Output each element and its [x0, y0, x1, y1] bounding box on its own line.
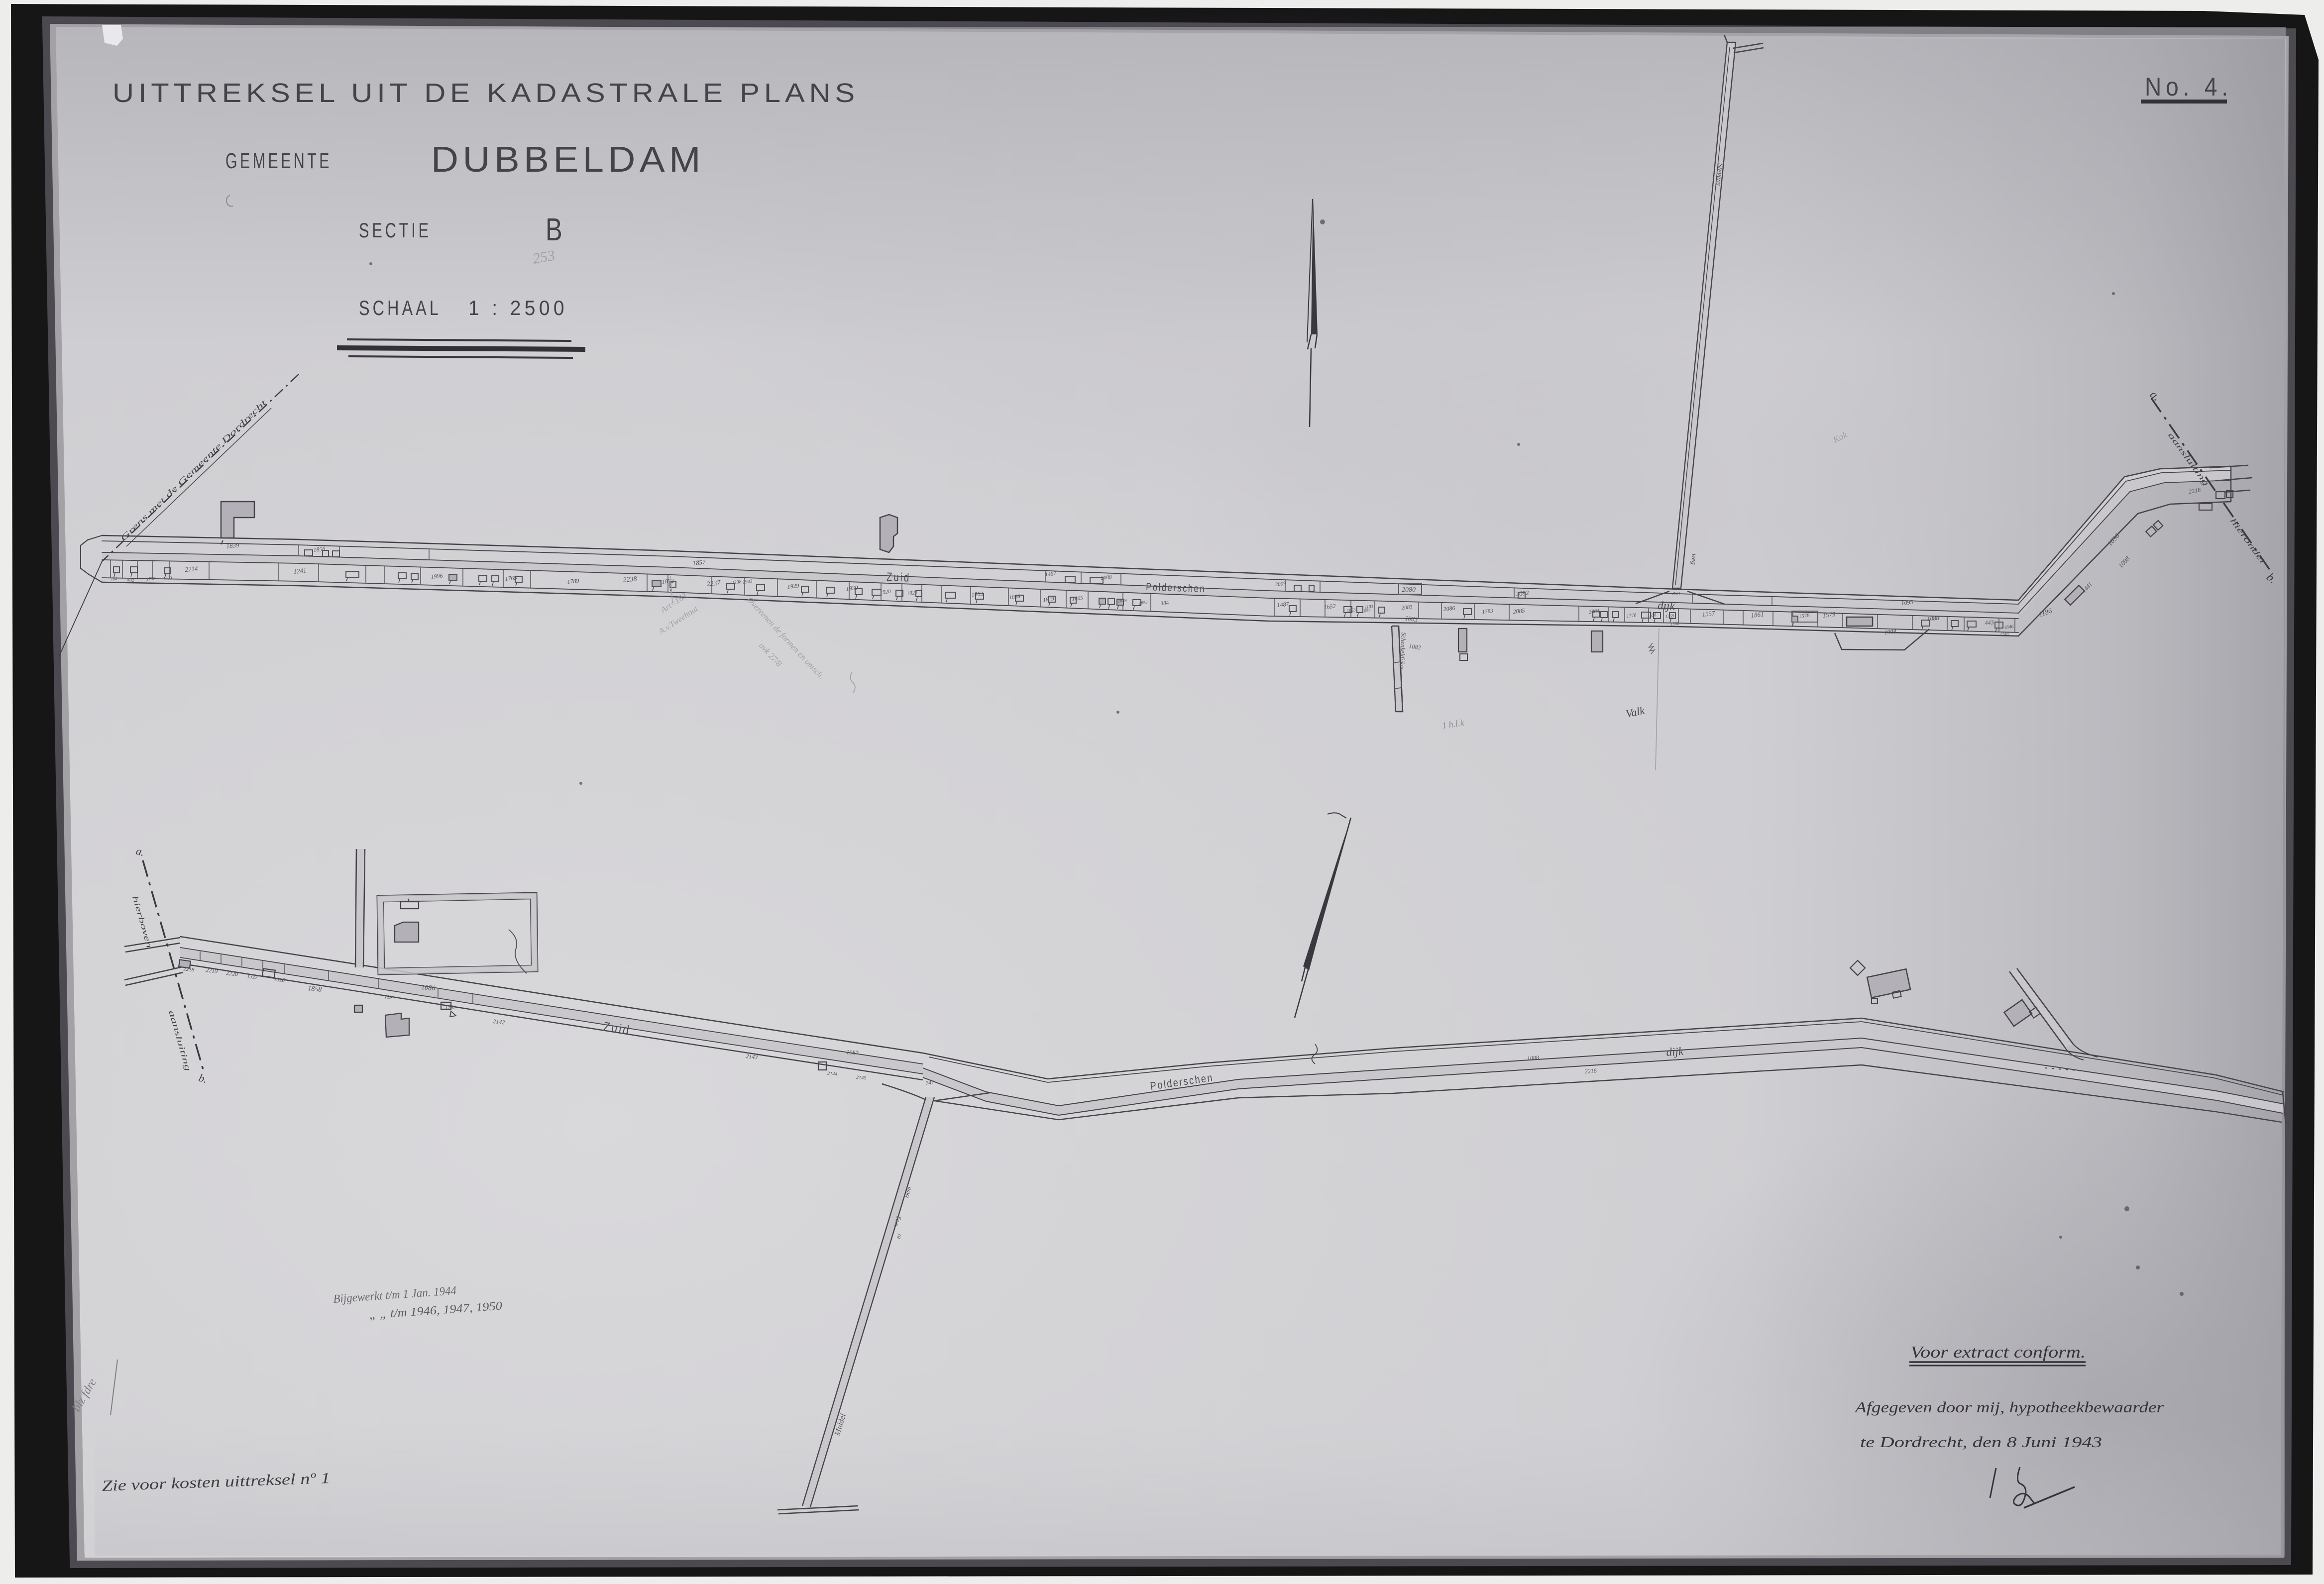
svg-text:Voor extract conform.: Voor extract conform. — [1910, 1343, 2086, 1362]
svg-text:1849: 1849 — [1117, 598, 1127, 604]
svg-text:SECTIE: SECTIE — [359, 218, 432, 242]
svg-text:747: 747 — [925, 1080, 934, 1086]
svg-text:No. 4.: No. 4. — [2145, 73, 2232, 102]
svg-text:2008: 2008 — [1101, 574, 1112, 581]
svg-text:1846: 1846 — [2003, 624, 2014, 631]
svg-text:1087: 1087 — [846, 1049, 859, 1056]
svg-text:1652: 1652 — [1324, 603, 1336, 611]
svg-text:1578: 1578 — [1798, 613, 1810, 620]
svg-text:SCHAAL: SCHAAL — [359, 296, 442, 319]
svg-text:2083: 2083 — [1401, 604, 1413, 611]
svg-text:502: 502 — [127, 578, 134, 583]
svg-text:GEMEENTE: GEMEENTE — [225, 149, 332, 173]
svg-text:dijk: dijk — [1658, 599, 1675, 612]
svg-text:1861: 1861 — [1751, 610, 1764, 619]
svg-text:1707: 1707 — [146, 576, 155, 582]
svg-text:1778: 1778 — [1626, 613, 1637, 619]
svg-text:159: 159 — [384, 994, 392, 1001]
svg-text:1865: 1865 — [1072, 595, 1084, 602]
svg-text:2142: 2142 — [493, 1018, 505, 1026]
svg-text:dijk: dijk — [1666, 1045, 1684, 1058]
svg-text:1467: 1467 — [1045, 571, 1057, 578]
svg-text:784: 784 — [110, 576, 117, 582]
svg-text:2143: 2143 — [746, 1053, 758, 1060]
svg-text:1088: 1088 — [1927, 615, 1939, 623]
svg-text:1328: 1328 — [274, 976, 286, 983]
svg-text:2219: 2219 — [206, 966, 218, 974]
svg-text:Polderschen: Polderschen — [1146, 581, 1206, 595]
svg-text:1327: 1327 — [247, 973, 259, 980]
svg-text:1852: 1852 — [1138, 600, 1148, 606]
svg-text:1095: 1095 — [1901, 599, 1913, 607]
svg-text:1088: 1088 — [1527, 1054, 1539, 1062]
svg-text:2082: 2082 — [1516, 589, 1530, 598]
svg-text:Afgegeven door mij, hypotheekb: Afgegeven door mij, hypotheekbewaarder — [1854, 1398, 2165, 1416]
svg-text:2238: 2238 — [731, 579, 742, 586]
svg-text:1836: 1836 — [1009, 594, 1021, 601]
svg-text:1086: 1086 — [421, 984, 436, 992]
svg-text:1103: 1103 — [1364, 604, 1374, 610]
svg-text:2085: 2085 — [1513, 607, 1525, 615]
svg-text:Zuid: Zuid — [886, 570, 911, 585]
svg-text:2084: 2084 — [1588, 608, 1600, 615]
svg-text:1556: 1556 — [1670, 621, 1679, 627]
svg-text:2080: 2080 — [1402, 586, 1416, 594]
svg-text:2214: 2214 — [185, 564, 199, 573]
svg-text:2237: 2237 — [706, 579, 721, 588]
svg-text:1653: 1653 — [1346, 607, 1356, 613]
svg-text:1 : 2500: 1 : 2500 — [468, 296, 568, 319]
svg-text:1858: 1858 — [308, 985, 322, 994]
svg-text:1819: 1819 — [1043, 596, 1055, 603]
svg-text:2238: 2238 — [623, 575, 637, 584]
svg-text:1996: 1996 — [431, 572, 443, 580]
svg-text:1930: 1930 — [846, 584, 858, 592]
svg-text:2144: 2144 — [827, 1071, 838, 1077]
svg-text:1852: 1852 — [662, 577, 674, 585]
svg-text:1487: 1487 — [1277, 600, 1290, 609]
svg-text:weg: weg — [1689, 553, 1698, 565]
svg-text:1943: 1943 — [742, 579, 753, 585]
svg-text:UITTREKSEL UIT DE KADASTRALE P: UITTREKSEL UIT DE KADASTRALE PLANS — [112, 78, 859, 108]
svg-text:2216: 2216 — [1584, 1067, 1597, 1075]
svg-text:1857: 1857 — [692, 558, 706, 567]
svg-text:2009: 2009 — [1275, 581, 1287, 588]
svg-text:1856: 1856 — [313, 545, 326, 553]
svg-text:1557: 1557 — [1702, 609, 1716, 618]
svg-text:1792: 1792 — [445, 1004, 457, 1011]
svg-text:1241: 1241 — [293, 566, 307, 575]
svg-text:833: 833 — [1672, 591, 1680, 597]
svg-text:1929: 1929 — [787, 582, 799, 590]
svg-text:384: 384 — [1160, 600, 1169, 607]
svg-text:1908: 1908 — [1884, 628, 1896, 636]
svg-text:1789: 1789 — [567, 577, 579, 585]
svg-text:1920: 1920 — [880, 589, 891, 596]
svg-text:B: B — [546, 211, 565, 247]
svg-text:1558: 1558 — [1647, 612, 1657, 618]
svg-text:2220: 2220 — [226, 969, 238, 977]
svg-text:1765: 1765 — [505, 574, 517, 582]
svg-text:1633: 1633 — [163, 575, 172, 581]
svg-text:1579: 1579 — [1822, 610, 1836, 619]
svg-text:1863: 1863 — [971, 590, 984, 598]
svg-text:443: 443 — [1985, 619, 1994, 627]
svg-text:1783: 1783 — [1482, 608, 1494, 615]
svg-text:1559: 1559 — [1665, 613, 1674, 619]
svg-text:2145: 2145 — [856, 1075, 867, 1081]
svg-text:2086: 2086 — [1443, 605, 1455, 613]
svg-text:te Dordrecht, den 8 Juni 1943: te Dordrecht, den 8 Juni 1943 — [1860, 1433, 2102, 1451]
svg-text:DUBBELDAM: DUBBELDAM — [431, 140, 705, 180]
svg-text:1248: 1248 — [1999, 631, 2009, 637]
svg-text:1921: 1921 — [906, 590, 918, 597]
svg-text:1839: 1839 — [226, 541, 240, 550]
